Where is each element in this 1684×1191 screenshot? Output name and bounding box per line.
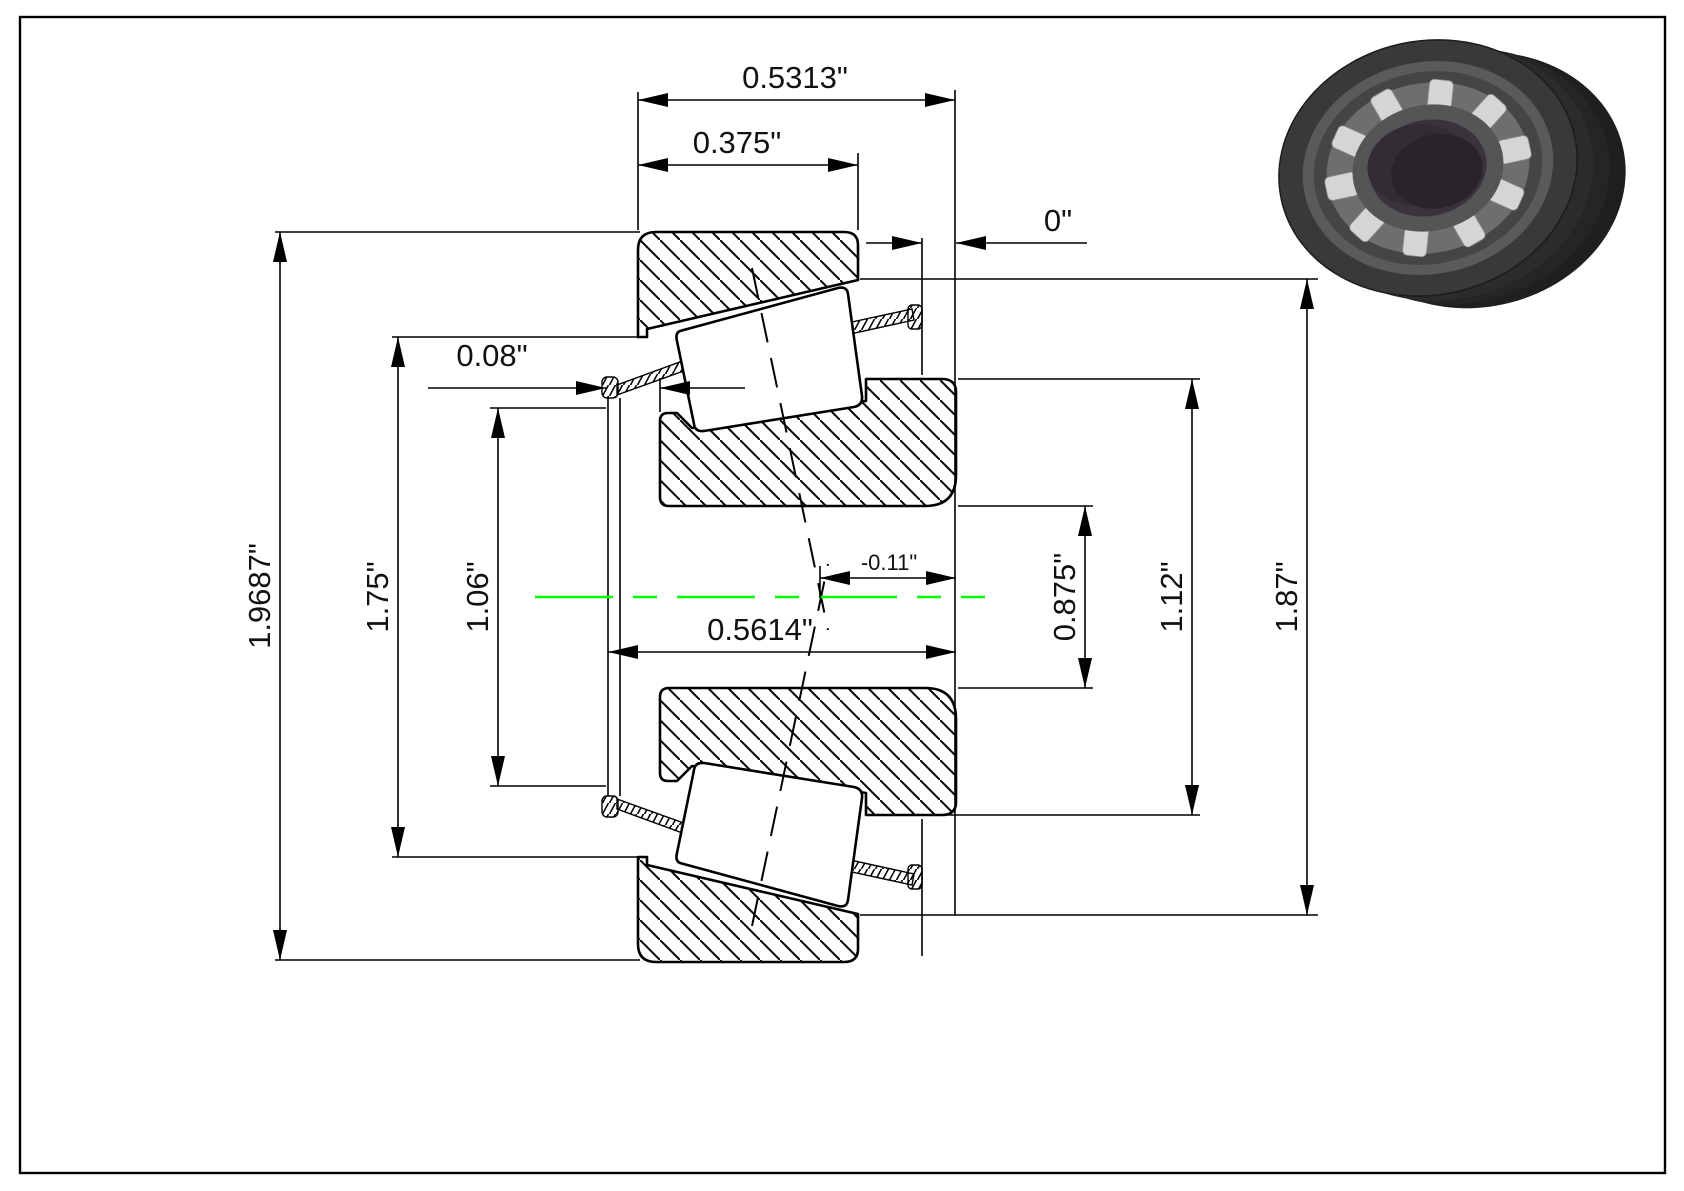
cage-lip-bottom-right — [908, 865, 922, 889]
dim-label-top-outer-width: 0.5313" — [742, 60, 848, 95]
dim-label-cup-race-diameter: 1.87" — [1269, 561, 1304, 632]
cage-lip-top-right — [908, 305, 922, 329]
dim-label-outer-diameter: 1.9687" — [242, 543, 277, 649]
dim-label-top-inner-width: 0.375" — [693, 125, 782, 160]
dim-label-right-standout: 0" — [1044, 203, 1072, 238]
bearing-3d-render — [1255, 3, 1650, 345]
dim-label-effective-center: -0.11" — [861, 550, 917, 575]
dim-label-mid-width: 0.5614" — [707, 612, 813, 647]
dim-label-bore-diameter: 0.875" — [1047, 553, 1082, 642]
drawing-page: 0.5313" 0.375" 0" 0.08" 0.5614" -0.11" 1… — [0, 0, 1684, 1191]
dim-label-inner-rib-diameter: 1.06" — [460, 561, 495, 632]
cage-lip-bottom-left — [602, 796, 618, 817]
bearing-cross-section-drawing: 0.5313" 0.375" 0" 0.08" 0.5614" -0.11" 1… — [0, 0, 1684, 1191]
dim-label-left-standout: 0.08" — [456, 338, 527, 373]
dim-label-cone-front-diameter: 1.12" — [1154, 561, 1189, 632]
dim-label-mid-diameter: 1.75" — [360, 561, 395, 632]
